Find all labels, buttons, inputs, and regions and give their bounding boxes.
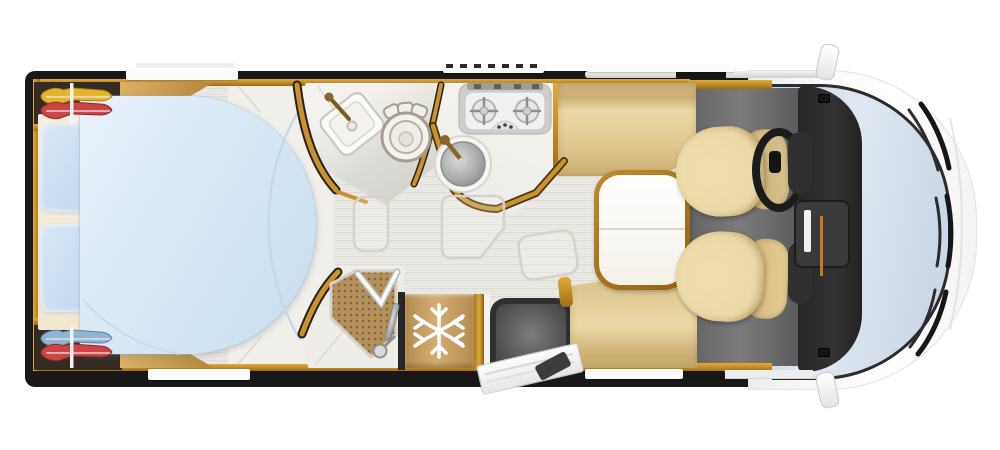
refrigerator	[405, 294, 474, 368]
motorhome-floorplan	[0, 0, 1000, 450]
dash-vent-top	[818, 94, 830, 103]
dashboard-cowl-top	[788, 132, 812, 194]
window-bedroom-top-vent	[136, 63, 234, 68]
driver-swivel-seat	[674, 229, 791, 325]
center-console	[794, 200, 850, 268]
steering-column	[769, 151, 781, 173]
window-bedroom-top	[126, 69, 238, 80]
window-blind-tabs	[446, 64, 541, 68]
window-dinette-bottom	[585, 369, 683, 379]
window-kitchen	[443, 63, 544, 73]
console-screen	[804, 210, 811, 252]
window-dinette-top	[588, 63, 735, 72]
entry-jamb-wood	[474, 294, 484, 370]
window-cab-bottom	[725, 370, 813, 378]
seat-cushion	[674, 229, 767, 323]
dash-vent-bottom	[818, 348, 830, 357]
cab-wall-trim-top	[688, 80, 772, 89]
fridge-partition-wall	[398, 292, 405, 370]
window-bedroom-bottom	[148, 369, 250, 380]
dinette-table-top	[599, 175, 685, 285]
mirror-mount-bottom	[679, 371, 725, 381]
table-extension-seam	[599, 228, 685, 230]
